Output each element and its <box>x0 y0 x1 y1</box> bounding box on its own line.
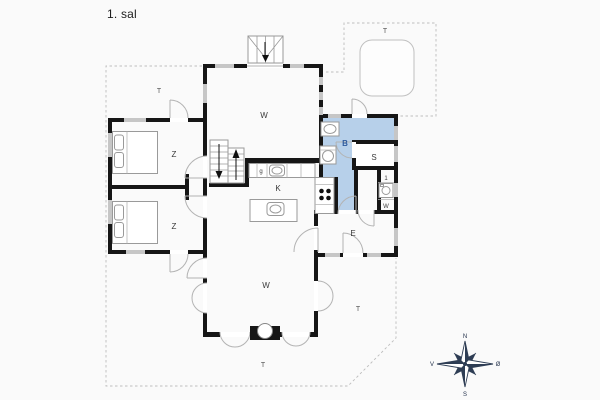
room-label-z2: Z <box>172 222 177 231</box>
door-gap <box>352 114 367 118</box>
window-marker <box>325 253 340 257</box>
door-gap <box>338 210 356 214</box>
door-gap <box>314 281 318 311</box>
compass-south-label: S <box>463 392 467 398</box>
hot-tub-icon <box>360 40 414 96</box>
wall-segment <box>203 118 207 254</box>
washer-panel <box>381 185 384 187</box>
compass-west-label: V <box>430 362 434 368</box>
door-gap <box>358 210 374 214</box>
window-marker <box>319 92 323 100</box>
terrace-label-bottom: T <box>261 362 266 369</box>
door-gap <box>282 332 310 337</box>
pillow <box>115 205 124 220</box>
room-label-kitchen: K <box>275 184 281 193</box>
pillow <box>115 153 124 168</box>
interior-stairs-icon <box>210 140 244 183</box>
window-marker <box>290 64 304 68</box>
wall-segment <box>245 158 322 163</box>
window-marker <box>203 84 207 103</box>
compass-east-label: Ø <box>496 362 501 368</box>
wall-segment <box>352 140 396 144</box>
room-label-z1: Z <box>172 150 177 159</box>
wall-segment <box>108 250 207 254</box>
window-marker <box>394 228 398 246</box>
wall-segment <box>352 166 398 170</box>
window-marker <box>328 114 341 118</box>
room-label-w-top: W <box>260 111 268 120</box>
room-label-bathroom: B <box>342 139 348 148</box>
floor-plan-drawing: N S V Ø W Z Z B S K g 1 W E W T T T T <box>0 0 600 400</box>
window-marker <box>319 107 323 115</box>
floor-plan-page: 1. sal <box>0 0 600 400</box>
utility-bottom-label: W <box>383 204 389 210</box>
room-label-entry: E <box>350 229 355 238</box>
fireplace-stove <box>258 324 273 339</box>
door-gap <box>170 118 188 122</box>
exterior-stairs-icon <box>248 36 283 63</box>
sink-basin <box>272 167 282 174</box>
window-marker <box>126 250 145 254</box>
door-gap <box>352 142 356 158</box>
wall-segment <box>245 158 249 187</box>
door-gap <box>220 332 250 337</box>
french-door-arc <box>318 281 333 311</box>
wall-segment <box>108 185 189 189</box>
window-marker <box>108 133 112 157</box>
room-label-w-bottom: W <box>262 281 270 290</box>
window-marker <box>215 64 234 68</box>
door-gap <box>203 258 207 278</box>
door-gap <box>203 196 207 218</box>
window-marker <box>319 77 323 85</box>
sink-basin <box>324 125 336 134</box>
washer-drum <box>382 187 390 195</box>
compass-rose-icon: N S V Ø <box>430 334 501 398</box>
fireplace-icon <box>250 324 280 341</box>
window-marker <box>394 183 398 197</box>
utility-top-label: 1 <box>384 176 388 182</box>
counter-glyph-label: g <box>259 169 262 175</box>
washing-machine-icon <box>378 183 394 200</box>
room-label-s: S <box>371 153 376 162</box>
door-arc <box>170 100 188 118</box>
window-marker <box>108 200 112 224</box>
door-gap <box>343 253 363 257</box>
terrace-label-top-right: T <box>383 28 388 35</box>
window-marker <box>367 253 381 257</box>
wall-segment <box>108 118 207 122</box>
bed-icon-z2 <box>113 202 158 244</box>
window-marker <box>124 118 146 122</box>
sink-basin <box>270 205 281 213</box>
compass-north-label: N <box>463 334 467 340</box>
pillow <box>115 223 124 238</box>
kitchen-counter-side <box>315 178 334 214</box>
toilet-bowl <box>323 151 334 162</box>
compass-center <box>463 362 467 366</box>
door-arc <box>170 254 188 272</box>
door-gap <box>203 156 207 178</box>
window-marker <box>394 126 398 140</box>
bed-icon-z1 <box>113 132 158 174</box>
wall-segment <box>209 183 249 187</box>
terrace-label-top-left: T <box>157 88 162 95</box>
door-gap <box>203 283 207 313</box>
wall-segment <box>334 177 338 214</box>
terrace-label-right: T <box>356 306 361 313</box>
door-gap <box>314 226 318 250</box>
window-marker <box>394 146 398 162</box>
pillow <box>115 135 124 150</box>
door-gap <box>170 250 188 254</box>
door-arc <box>352 99 367 114</box>
